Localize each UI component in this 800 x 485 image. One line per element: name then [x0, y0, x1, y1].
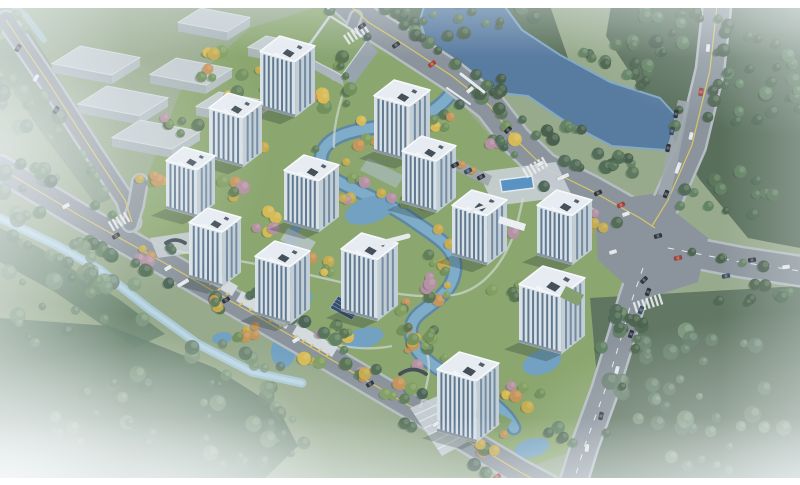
car — [748, 257, 757, 262]
bottom-white-margin — [0, 478, 800, 485]
car — [705, 44, 710, 52]
aerial-rendering-stage — [0, 0, 800, 485]
car — [782, 264, 790, 269]
top-white-margin — [0, 0, 800, 8]
aerial-scene — [0, 0, 800, 485]
